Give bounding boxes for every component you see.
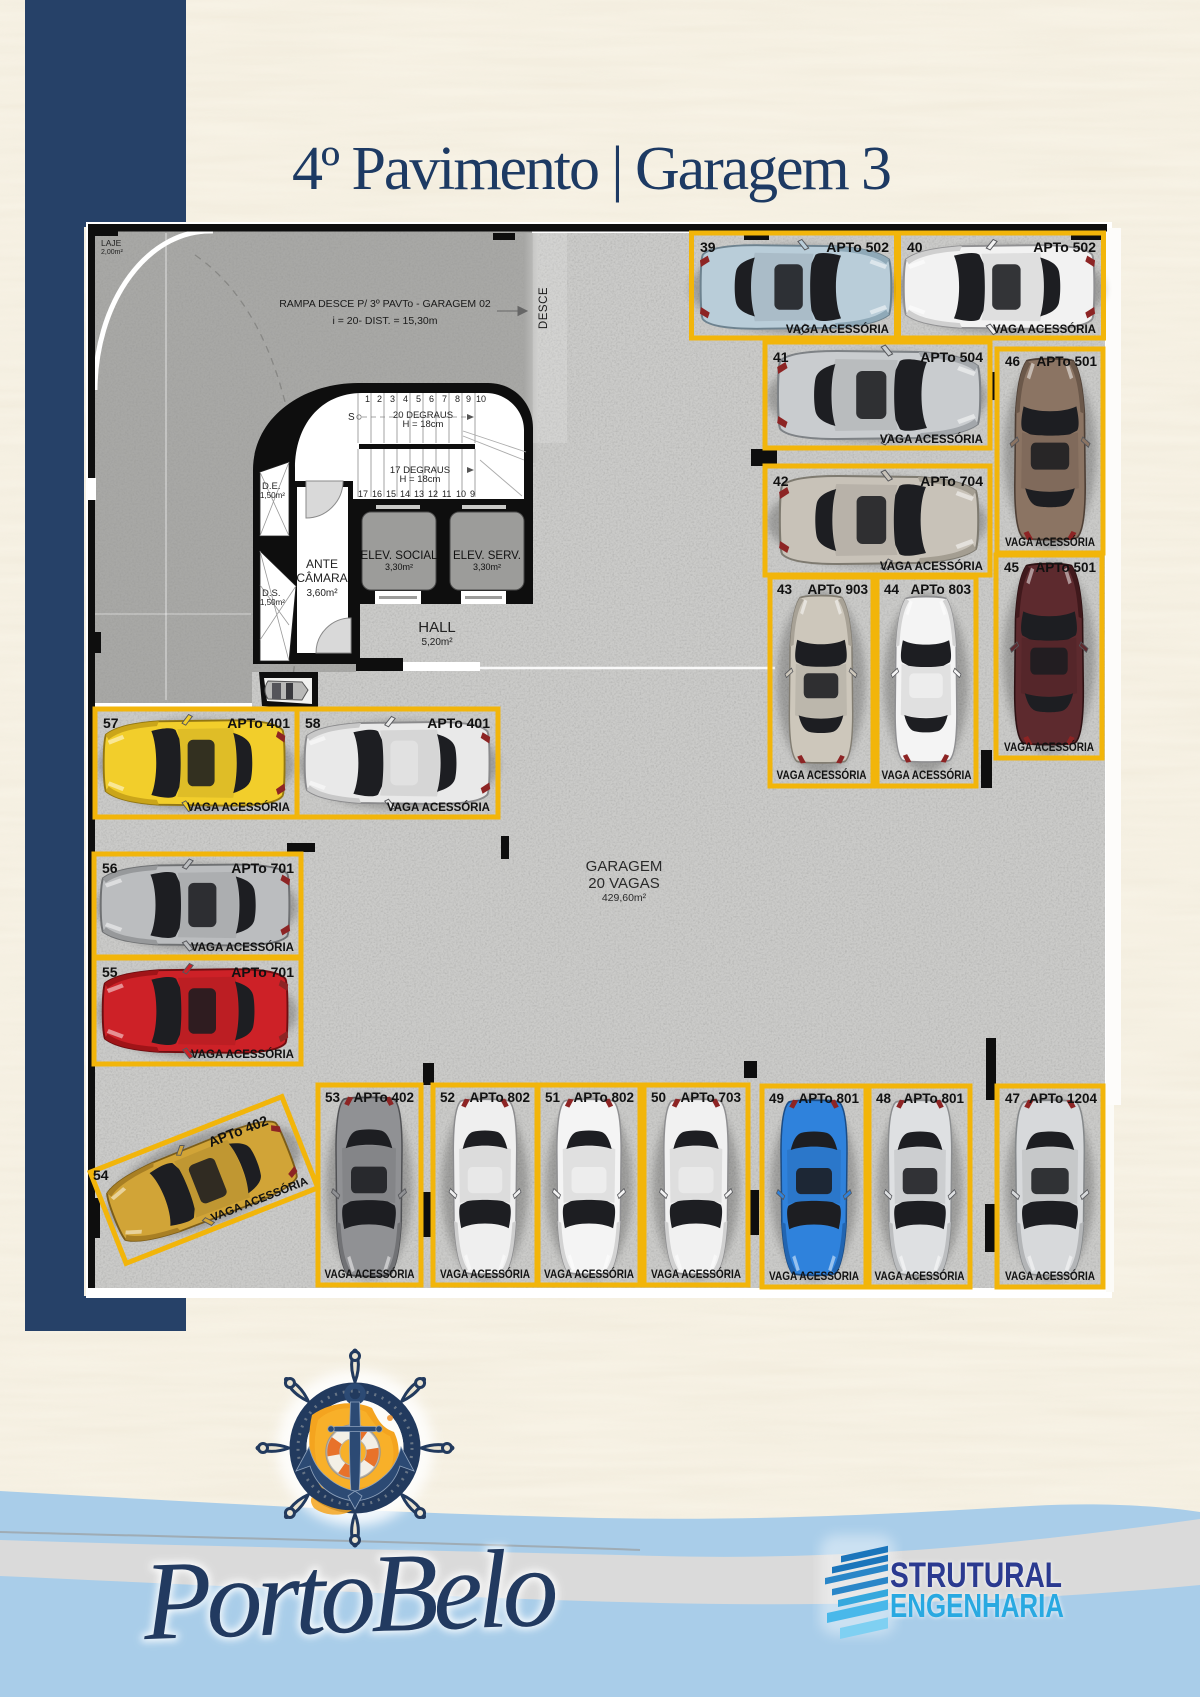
svg-text:APTo 501: APTo 501 bbox=[1036, 354, 1097, 369]
svg-text:1,50m²: 1,50m² bbox=[260, 598, 285, 607]
svg-text:58: 58 bbox=[305, 715, 321, 731]
svg-text:HALL: HALL bbox=[418, 619, 456, 636]
svg-text:APTo 504: APTo 504 bbox=[920, 349, 983, 365]
svg-text:VAGA ACESSÓRIA: VAGA ACESSÓRIA bbox=[1004, 741, 1094, 754]
svg-text:VAGA ACESSÓRIA: VAGA ACESSÓRIA bbox=[325, 1268, 415, 1281]
svg-text:APTo 401: APTo 401 bbox=[427, 715, 490, 731]
svg-text:ENGENHARIA: ENGENHARIA bbox=[890, 1587, 1064, 1624]
svg-text:53: 53 bbox=[325, 1090, 341, 1105]
svg-text:H = 18cm: H = 18cm bbox=[400, 474, 441, 485]
svg-text:46: 46 bbox=[1005, 354, 1021, 369]
svg-text:56: 56 bbox=[102, 860, 118, 876]
svg-text:VAGA ACESSÓRIA: VAGA ACESSÓRIA bbox=[777, 769, 867, 782]
svg-text:PortoBelo: PortoBelo bbox=[140, 1526, 560, 1664]
svg-text:5: 5 bbox=[416, 394, 421, 404]
svg-text:50: 50 bbox=[651, 1090, 666, 1105]
svg-text:40: 40 bbox=[907, 239, 923, 255]
svg-text:VAGA ACESSÓRIA: VAGA ACESSÓRIA bbox=[880, 433, 983, 446]
svg-text:20 VAGAS: 20 VAGAS bbox=[588, 875, 659, 892]
svg-text:H = 18cm: H = 18cm bbox=[403, 419, 444, 430]
svg-text:APTo 701: APTo 701 bbox=[231, 964, 294, 980]
svg-text:VAGA ACESSÓRIA: VAGA ACESSÓRIA bbox=[651, 1268, 741, 1281]
svg-text:APTo 502: APTo 502 bbox=[1033, 239, 1096, 255]
svg-text:41: 41 bbox=[773, 349, 789, 365]
svg-text:VAGA ACESSÓRIA: VAGA ACESSÓRIA bbox=[544, 1268, 634, 1281]
svg-text:8: 8 bbox=[455, 394, 460, 404]
svg-text:VAGA ACESSÓRIA: VAGA ACESSÓRIA bbox=[191, 941, 294, 954]
svg-text:APTo 802: APTo 802 bbox=[573, 1090, 634, 1105]
svg-text:APTo 802: APTo 802 bbox=[469, 1090, 530, 1105]
svg-text:2,00m²: 2,00m² bbox=[101, 249, 123, 256]
svg-text:48: 48 bbox=[876, 1091, 892, 1106]
svg-text:APTo 803: APTo 803 bbox=[910, 582, 971, 597]
svg-text:1,50m²: 1,50m² bbox=[260, 491, 285, 500]
svg-text:i = 20- DIST. = 15,30m: i = 20- DIST. = 15,30m bbox=[332, 315, 437, 327]
svg-text:17: 17 bbox=[358, 489, 368, 499]
svg-text:3,30m²: 3,30m² bbox=[385, 562, 413, 572]
svg-text:VAGA ACESSÓRIA: VAGA ACESSÓRIA bbox=[387, 801, 490, 814]
svg-text:RAMPA DESCE P/ 3º PAVTo - GARA: RAMPA DESCE P/ 3º PAVTo - GARAGEM 02 bbox=[279, 298, 491, 310]
svg-text:VAGA ACESSÓRIA: VAGA ACESSÓRIA bbox=[875, 1270, 965, 1283]
svg-text:APTo 801: APTo 801 bbox=[903, 1091, 964, 1106]
svg-text:3,60m²: 3,60m² bbox=[306, 588, 338, 599]
svg-text:APTo 701: APTo 701 bbox=[231, 860, 294, 876]
svg-text:VAGA ACESSÓRIA: VAGA ACESSÓRIA bbox=[1005, 536, 1095, 549]
svg-text:54: 54 bbox=[93, 1167, 109, 1183]
svg-text:VAGA ACESSÓRIA: VAGA ACESSÓRIA bbox=[880, 560, 983, 573]
svg-text:VAGA ACESSÓRIA: VAGA ACESSÓRIA bbox=[187, 801, 290, 814]
svg-text:42: 42 bbox=[773, 473, 789, 489]
svg-text:57: 57 bbox=[103, 715, 119, 731]
svg-text:45: 45 bbox=[1004, 560, 1020, 575]
svg-text:55: 55 bbox=[102, 964, 118, 980]
svg-text:4º Pavimento | Garagem 3: 4º Pavimento | Garagem 3 bbox=[292, 135, 892, 203]
svg-text:S: S bbox=[348, 412, 355, 423]
svg-text:GARAGEM: GARAGEM bbox=[586, 858, 663, 875]
svg-text:11: 11 bbox=[442, 489, 451, 499]
svg-text:ELEV. SOCIAL: ELEV. SOCIAL bbox=[361, 550, 439, 562]
svg-text:ANTE: ANTE bbox=[306, 557, 338, 571]
svg-text:3: 3 bbox=[390, 394, 395, 404]
svg-text:9: 9 bbox=[470, 489, 475, 499]
svg-text:LAJE: LAJE bbox=[101, 238, 122, 248]
svg-text:CÂMARA: CÂMARA bbox=[296, 570, 347, 585]
svg-text:44: 44 bbox=[884, 582, 900, 597]
svg-text:VAGA ACESSÓRIA: VAGA ACESSÓRIA bbox=[440, 1268, 530, 1281]
svg-text:14: 14 bbox=[400, 489, 410, 499]
svg-text:15: 15 bbox=[386, 489, 396, 499]
svg-text:APTo 402: APTo 402 bbox=[353, 1090, 414, 1105]
svg-text:16: 16 bbox=[372, 489, 382, 499]
svg-text:49: 49 bbox=[769, 1091, 784, 1106]
svg-text:12: 12 bbox=[428, 489, 438, 499]
svg-text:VAGA ACESSÓRIA: VAGA ACESSÓRIA bbox=[191, 1048, 294, 1061]
svg-text:47: 47 bbox=[1005, 1091, 1020, 1106]
svg-text:5,20m²: 5,20m² bbox=[421, 637, 453, 648]
svg-text:10: 10 bbox=[476, 394, 486, 404]
svg-text:4: 4 bbox=[403, 394, 408, 404]
svg-text:2: 2 bbox=[377, 394, 382, 404]
svg-text:APTo 703: APTo 703 bbox=[680, 1090, 741, 1105]
svg-text:APTo 1204: APTo 1204 bbox=[1029, 1091, 1098, 1106]
svg-text:13: 13 bbox=[414, 489, 424, 499]
svg-text:9: 9 bbox=[466, 394, 471, 404]
svg-text:429,60m²: 429,60m² bbox=[602, 892, 647, 904]
svg-text:52: 52 bbox=[440, 1090, 455, 1105]
svg-text:APTo 903: APTo 903 bbox=[807, 582, 868, 597]
svg-text:39: 39 bbox=[700, 239, 716, 255]
svg-text:51: 51 bbox=[545, 1090, 561, 1105]
svg-text:APTo 401: APTo 401 bbox=[227, 715, 290, 731]
svg-text:APTo 801: APTo 801 bbox=[798, 1091, 859, 1106]
svg-text:VAGA ACESSÓRIA: VAGA ACESSÓRIA bbox=[882, 769, 972, 782]
svg-text:VAGA ACESSÓRIA: VAGA ACESSÓRIA bbox=[769, 1270, 859, 1283]
svg-text:7: 7 bbox=[442, 394, 447, 404]
svg-text:DESCE: DESCE bbox=[538, 287, 550, 329]
svg-text:3,30m²: 3,30m² bbox=[473, 562, 501, 572]
svg-text:10: 10 bbox=[456, 489, 466, 499]
svg-text:APTo 704: APTo 704 bbox=[920, 473, 983, 489]
svg-text:APTo 502: APTo 502 bbox=[826, 239, 889, 255]
svg-text:VAGA ACESSÓRIA: VAGA ACESSÓRIA bbox=[1005, 1270, 1095, 1283]
svg-text:43: 43 bbox=[777, 582, 793, 597]
svg-text:ELEV. SERV.: ELEV. SERV. bbox=[453, 550, 521, 562]
svg-text:APTo 501: APTo 501 bbox=[1035, 560, 1096, 575]
svg-text:1: 1 bbox=[365, 394, 370, 404]
svg-text:VAGA ACESSÓRIA: VAGA ACESSÓRIA bbox=[993, 323, 1096, 336]
svg-text:VAGA ACESSÓRIA: VAGA ACESSÓRIA bbox=[786, 323, 889, 336]
svg-text:6: 6 bbox=[429, 394, 434, 404]
